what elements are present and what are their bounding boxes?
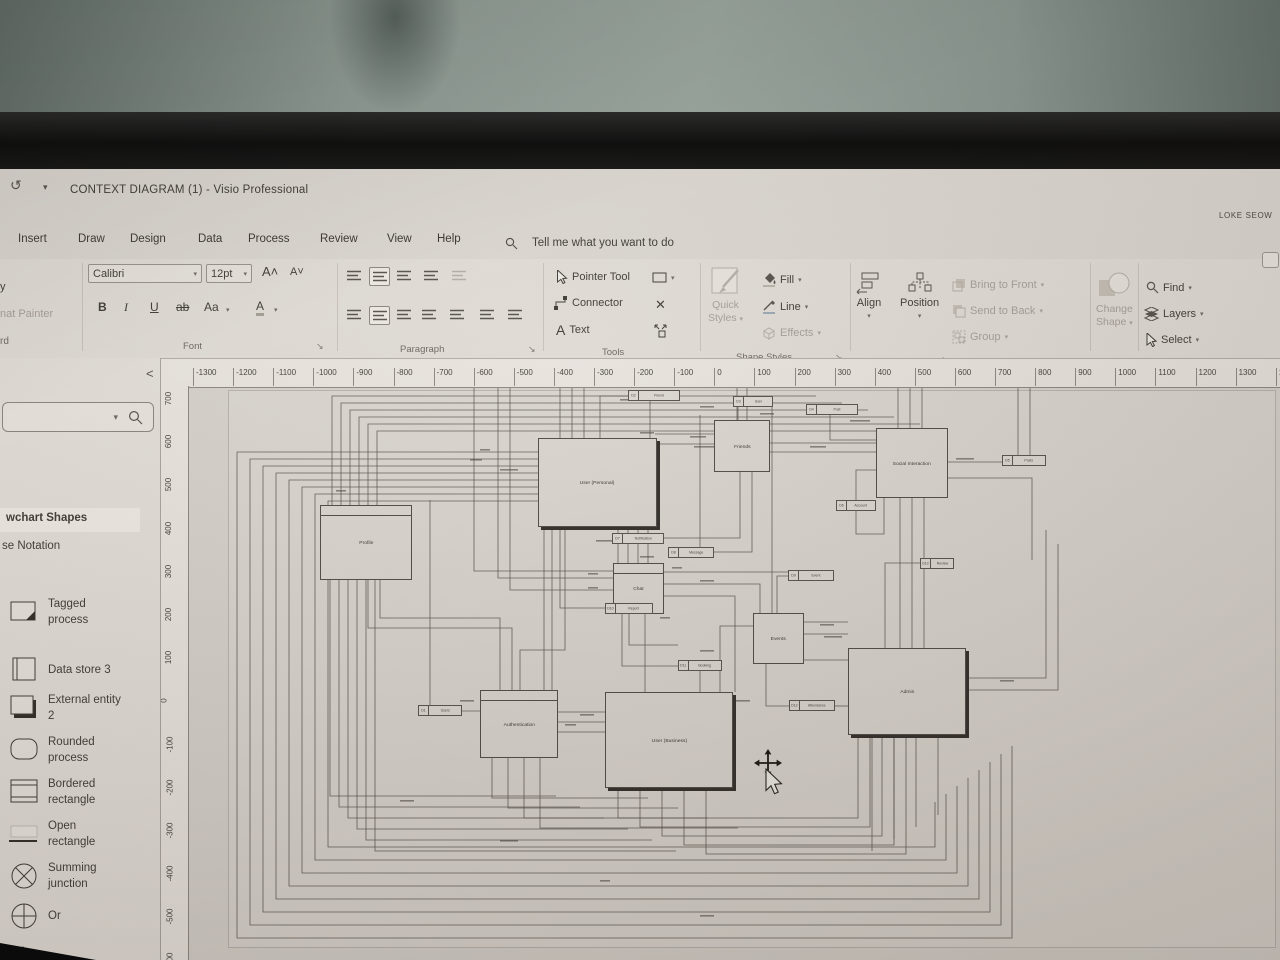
store-name: Friend [639,391,679,400]
tools-group-label: Tools [602,347,624,358]
layers-icon [1144,307,1159,321]
hruler-tick: -800 [394,368,413,386]
find-label: Find [1163,282,1184,294]
store-id: D1 [419,706,429,715]
shapes-search-box[interactable]: ▾ [2,402,154,432]
data-store-D13[interactable]: D13Review [920,558,954,569]
node-label: Profile [359,540,373,546]
bold-button[interactable]: B [98,300,107,314]
menu-tab-view[interactable]: View [387,233,412,245]
diagram-node-user-business[interactable]: User (Business) [605,692,733,788]
hruler-tick: 200 [795,368,811,386]
effects-icon [762,326,776,340]
hruler-tick: 500 [915,368,931,386]
align-icon [856,272,882,294]
font-family-combobox[interactable]: Calibri ▾ [88,264,202,283]
italic-button[interactable]: I [124,300,128,315]
format-painter-button-partial[interactable]: nat Painter [0,308,53,320]
select-icon [1146,333,1157,347]
chevron-down-icon: ▾ [243,270,247,278]
effects-label: Effects [780,327,813,339]
rectangle-tool-dropdown[interactable]: ▾ [652,272,675,283]
paragraph-format-button[interactable] [477,306,496,323]
vruler-tick: -400 [166,866,175,882]
hruler-tick: -600 [474,368,493,386]
copy-button-partial[interactable]: y [0,281,6,293]
chevron-down-icon: ▾ [817,329,821,337]
store-id: D8 [669,548,679,557]
shape-item-rounded-process[interactable]: Rounded process [8,734,95,766]
shape-item-bordered-rectangle[interactable]: Bordered rectangle [8,776,95,808]
menu-tab-data[interactable]: Data [198,233,222,245]
paragraph-format-button[interactable] [369,267,390,286]
effects-button[interactable]: Effects ▾ [762,326,821,340]
account-user-name[interactable]: LOKE SEOW [1219,211,1272,220]
vruler-tick: 300 [164,565,173,578]
paragraph-format-button[interactable] [369,306,390,325]
store-id: D2 [629,391,639,400]
tell-me-box[interactable]: Tell me what you want to do [532,237,674,249]
line-button[interactable]: Line ▾ [762,299,808,314]
vruler-tick: -500 [166,909,175,925]
diagram-node-admin[interactable]: Admin [848,648,966,735]
connector-tool-label: Connector [572,297,623,309]
paragraph-format-button[interactable] [344,267,363,284]
node-label: Events [771,636,786,642]
text-tool-button[interactable]: A Text [556,322,590,338]
node-label: Friends [734,443,751,449]
chevron-down-icon: ▾ [1005,333,1009,341]
hruler-tick: -300 [594,368,613,386]
chevron-down-icon: ▾ [193,270,197,278]
hruler-tick: 600 [955,368,971,386]
send-to-back-label: Send to Back [970,305,1035,317]
change-shape-label1: Change [1096,303,1133,315]
data-store-D12[interactable]: D12Attendance [789,700,835,711]
wall-background [0,0,1280,112]
shape-item-label: Data store 3 [48,662,111,678]
menu-tab-insert[interactable]: Insert [18,233,47,245]
hruler-tick: 1300 [1236,368,1257,386]
layers-button[interactable]: Layers ▾ [1144,307,1204,321]
bring-to-front-button[interactable]: Bring to Front ▾ [952,278,1044,292]
change-shape-icon [1097,270,1131,302]
menu-tab-draw[interactable]: Draw [78,233,105,245]
bring-to-front-icon [952,278,966,292]
hruler-tick: 0 [714,368,721,386]
store-name: Report [616,604,652,613]
group-icon [952,330,966,344]
chevron-down-icon: ▾ [1200,310,1204,318]
font-family-value: Calibri [93,268,124,280]
fill-label: Fill [780,274,794,286]
shape-item-external-entity[interactable]: External entity 2 [8,692,121,724]
store-id: D11 [679,661,689,670]
ribbon-options-button[interactable] [1262,252,1279,268]
store-id: D10 [606,604,616,613]
change-shape-button[interactable]: Change Shape ▾ [1096,270,1133,328]
hruler-tick: -1300 [193,368,216,386]
chevron-down-icon: ▾ [671,274,675,282]
fill-button[interactable]: Fill ▾ [762,272,802,287]
hruler-tick: 300 [835,368,851,386]
window-title: CONTEXT DIAGRAM (1) - Visio Professional [70,184,308,196]
chevron-down-icon: ▾ [867,312,871,320]
shape-item-or-circle[interactable]: Or [8,902,61,930]
change-case-button[interactable]: Aa [204,300,219,314]
store-id: D4 [807,405,817,414]
diagram-node-authentication[interactable]: Authentication [480,690,558,758]
paragraph-format-button[interactable] [505,306,524,323]
photo-of-monitor: User (Personal)FriendsSocial Interaction… [0,0,1280,960]
rectangle-icon [652,272,667,283]
external-entity-icon [8,694,40,722]
stencil-subheader[interactable]: se Notation [2,540,60,552]
qat-customize-icon[interactable]: ▾ [43,182,48,193]
connector-icon [554,296,568,310]
position-icon [908,272,932,294]
position-button[interactable]: Position ▾ [900,272,939,320]
data-store-D5[interactable]: D5Posts [1002,455,1046,466]
menu-tab-process[interactable]: Process [248,233,290,245]
data-store-D2[interactable]: D2Friend [628,390,680,401]
chevron-down-icon: ▾ [226,306,230,314]
summing-junction-icon [8,862,40,890]
hruler-tick: 1000 [1115,368,1136,386]
chevron-down-icon: ▾ [798,276,802,284]
shape-item-summing-junction[interactable]: Summing junction [8,860,97,892]
node-label: Authentication [503,721,534,727]
vruler-tick: 100 [164,651,173,664]
vruler-tick: 200 [164,608,173,621]
position-label: Position [900,297,939,309]
paragraph-format-button[interactable] [449,267,468,284]
chevron-down-icon: ▾ [1041,281,1045,289]
hruler-tick: 1200 [1196,368,1217,386]
search-icon [505,237,518,250]
rounded-process-icon [8,736,40,764]
data-store-D1[interactable]: D1Users [418,705,462,716]
store-id: D5 [1003,456,1013,465]
store-name: Booking [689,661,721,670]
data-store-D9[interactable]: D9Event [788,570,834,581]
font-group-label: Font [183,341,202,352]
vertical-ruler: 7006005004003002001000-100-200-300-400-5… [160,386,189,960]
data-store-D10[interactable]: D10Report [605,603,653,614]
vruler-tick: 600 [164,435,173,448]
hruler-tick: -400 [554,368,573,386]
strikethrough-button[interactable]: ab [176,300,189,314]
menu-tab-review[interactable]: Review [320,233,358,245]
change-shape-label2: Shape ▾ [1096,316,1133,328]
store-id: D9 [789,571,799,580]
store-id: D13 [921,559,931,568]
hruler-tick: 100 [754,368,770,386]
paragraph-group-label: Paragraph [400,344,444,355]
chevron-down-icon: ▾ [918,312,922,320]
store-name: Notification [623,534,663,543]
text-tool-label: Text [569,324,589,336]
chevron-down-icon: ▾ [805,303,809,311]
quick-styles-button[interactable]: Quick Styles ▾ [708,266,743,324]
hruler-tick: 800 [1035,368,1051,386]
hruler-tick: -500 [514,368,533,386]
store-id: D3 [734,397,744,406]
hruler-tick: -900 [353,368,372,386]
diagram-node-friends[interactable]: Friends [714,420,770,472]
delete-connector-icon[interactable]: ✕ [655,297,666,313]
shape-item-label: Or [48,908,61,924]
shape-item-label: Summing junction [48,860,97,892]
menu-tab-design[interactable]: Design [130,233,166,245]
font-size-combobox[interactable]: 12pt ▾ [206,264,252,283]
hruler-tick: -100 [674,368,693,386]
bordered-rectangle-icon [8,778,40,806]
paragraph-format-button[interactable] [394,267,413,284]
shape-item-label: Open rectangle [48,818,95,850]
pointer-tool-label: Pointer Tool [572,271,630,283]
text-tool-icon: A [556,322,565,338]
data-store-icon [8,656,40,684]
store-name: Post [817,405,857,414]
shape-item-label: Rounded process [48,734,95,766]
shape-item-data-store[interactable]: Data store 3 [8,656,111,684]
diagram-node-events[interactable]: Events [753,613,804,664]
chevron-down-icon: ▾ [274,306,278,314]
paragraph-format-button[interactable] [344,306,363,323]
quick-styles-label1: Quick [712,299,739,311]
paragraph-format-button[interactable] [421,267,440,284]
store-name: Review [931,559,953,568]
store-name: User [744,397,772,406]
select-label: Select [1161,334,1192,346]
paragraph-format-button[interactable] [419,306,438,323]
hruler-tick: 900 [1075,368,1091,386]
shape-item-tagged-process[interactable]: Tagged process [8,596,88,628]
tagged-process-icon [8,598,40,626]
data-store-D6[interactable]: D6Account [836,500,876,511]
shape-item-open-rectangle[interactable]: Open rectangle [8,818,95,850]
vruler-tick: -600 [166,952,175,960]
font-size-value: 12pt [211,268,232,280]
node-label: User (Personal) [580,480,615,486]
connector-tool-button[interactable]: Connector [554,296,623,310]
vruler-tick: 400 [164,521,173,534]
store-id: D7 [613,534,623,543]
data-store-D3[interactable]: D3User [733,396,773,407]
store-name: Attendance [800,701,834,710]
node-label: Chat [633,586,643,592]
shape-item-label: Tagged process [48,596,88,628]
search-icon [128,410,143,425]
hruler-tick: 400 [875,368,891,386]
connection-point-icon[interactable] [653,323,668,338]
find-button[interactable]: Find ▾ [1146,281,1192,294]
vruler-tick: 500 [164,478,173,491]
hruler-tick: -1000 [313,368,336,386]
align-label: Align [857,297,881,309]
shrink-font-button[interactable]: A˅ [290,266,304,278]
store-id: D6 [837,501,847,510]
shape-item-label: External entity 2 [48,692,121,724]
diagram-node-social-interaction[interactable]: Social Interaction [876,428,948,498]
shape-item-label: Bordered rectangle [48,776,95,808]
open-rectangle-icon [8,820,40,848]
chevron-down-icon: ▾ [1196,336,1200,344]
fill-icon [762,272,776,287]
font-color-button[interactable]: A [256,299,264,316]
line-label: Line [780,301,801,313]
shapes-panel: < ▾ wchart Shapes se Notation Tagged pro… [0,358,161,960]
hruler-tick: 1400 [1276,368,1280,386]
data-store-D4[interactable]: D4Post [806,404,858,415]
grow-font-button[interactable]: A˄ [262,264,278,279]
paragraph-format-button[interactable] [394,306,413,323]
hruler-tick: -1200 [233,368,256,386]
node-label: Admin [900,689,914,695]
store-name: Users [429,706,461,715]
stencil-header[interactable]: wchart Shapes [6,512,87,524]
hruler-tick: 700 [995,368,1011,386]
vruler-tick: 700 [164,392,173,405]
node-label: Social Interaction [893,460,931,466]
pointer-icon [556,270,568,284]
chevron-down-icon: ▾ [1188,284,1192,292]
store-name: Account [847,501,875,510]
hruler-tick: -1100 [273,368,296,386]
vruler-tick: -100 [166,736,175,752]
line-icon [762,299,776,314]
align-button[interactable]: Align ▾ [856,272,882,320]
select-button[interactable]: Select ▾ [1146,333,1199,347]
quick-styles-label2: Styles ▾ [708,312,743,324]
data-store-D8[interactable]: D8Message [668,547,714,558]
send-to-back-button[interactable]: Send to Back ▾ [952,304,1043,318]
hruler-tick: 1100 [1155,368,1175,386]
paragraph-dialog-launcher[interactable]: ↘ [528,344,536,355]
vruler-tick: -300 [166,822,175,838]
shape-list: Tagged processData store 3External entit… [0,588,160,960]
store-name: Message [679,548,713,557]
store-name: Event [799,571,833,580]
font-dialog-launcher[interactable]: ↘ [316,341,324,352]
vruler-tick: 0 [160,699,169,703]
menu-tab-help[interactable]: Help [437,233,461,245]
vruler-tick: -200 [166,779,175,795]
underline-button[interactable]: U [150,300,159,314]
group-button[interactable]: Group ▾ [952,330,1008,344]
pointer-tool-button[interactable]: Pointer Tool [556,270,630,284]
data-store-D11[interactable]: D11Booking [678,660,722,671]
panel-collapse-button[interactable]: < [146,366,154,381]
find-icon [1146,281,1159,294]
undo-icon[interactable]: ↺ [10,177,22,194]
node-label: User (Business) [651,737,686,743]
paragraph-format-button[interactable] [447,306,466,323]
clipboard-group-label-partial: rd [0,336,9,347]
or-circle-icon [8,902,40,930]
data-store-D7[interactable]: D7Notification [612,533,664,544]
hruler-tick: -700 [434,368,453,386]
bring-to-front-label: Bring to Front [970,279,1037,291]
monitor-bezel [0,112,1280,169]
diagram-node-user-personal[interactable]: User (Personal) [538,438,657,527]
layers-label: Layers [1163,308,1196,320]
horizontal-ruler: -1300-1200-1100-1000-900-800-700-600-500… [160,358,1280,388]
chevron-down-icon: ▾ [113,412,118,423]
diagram-node-profile[interactable]: Profile [320,505,412,580]
store-name: Posts [1013,456,1045,465]
quick-styles-icon [709,266,743,298]
chevron-down-icon: ▾ [1039,307,1043,315]
hruler-tick: -200 [634,368,653,386]
group-label: Group [970,331,1001,343]
send-to-back-icon [952,304,966,318]
store-id: D12 [790,701,800,710]
